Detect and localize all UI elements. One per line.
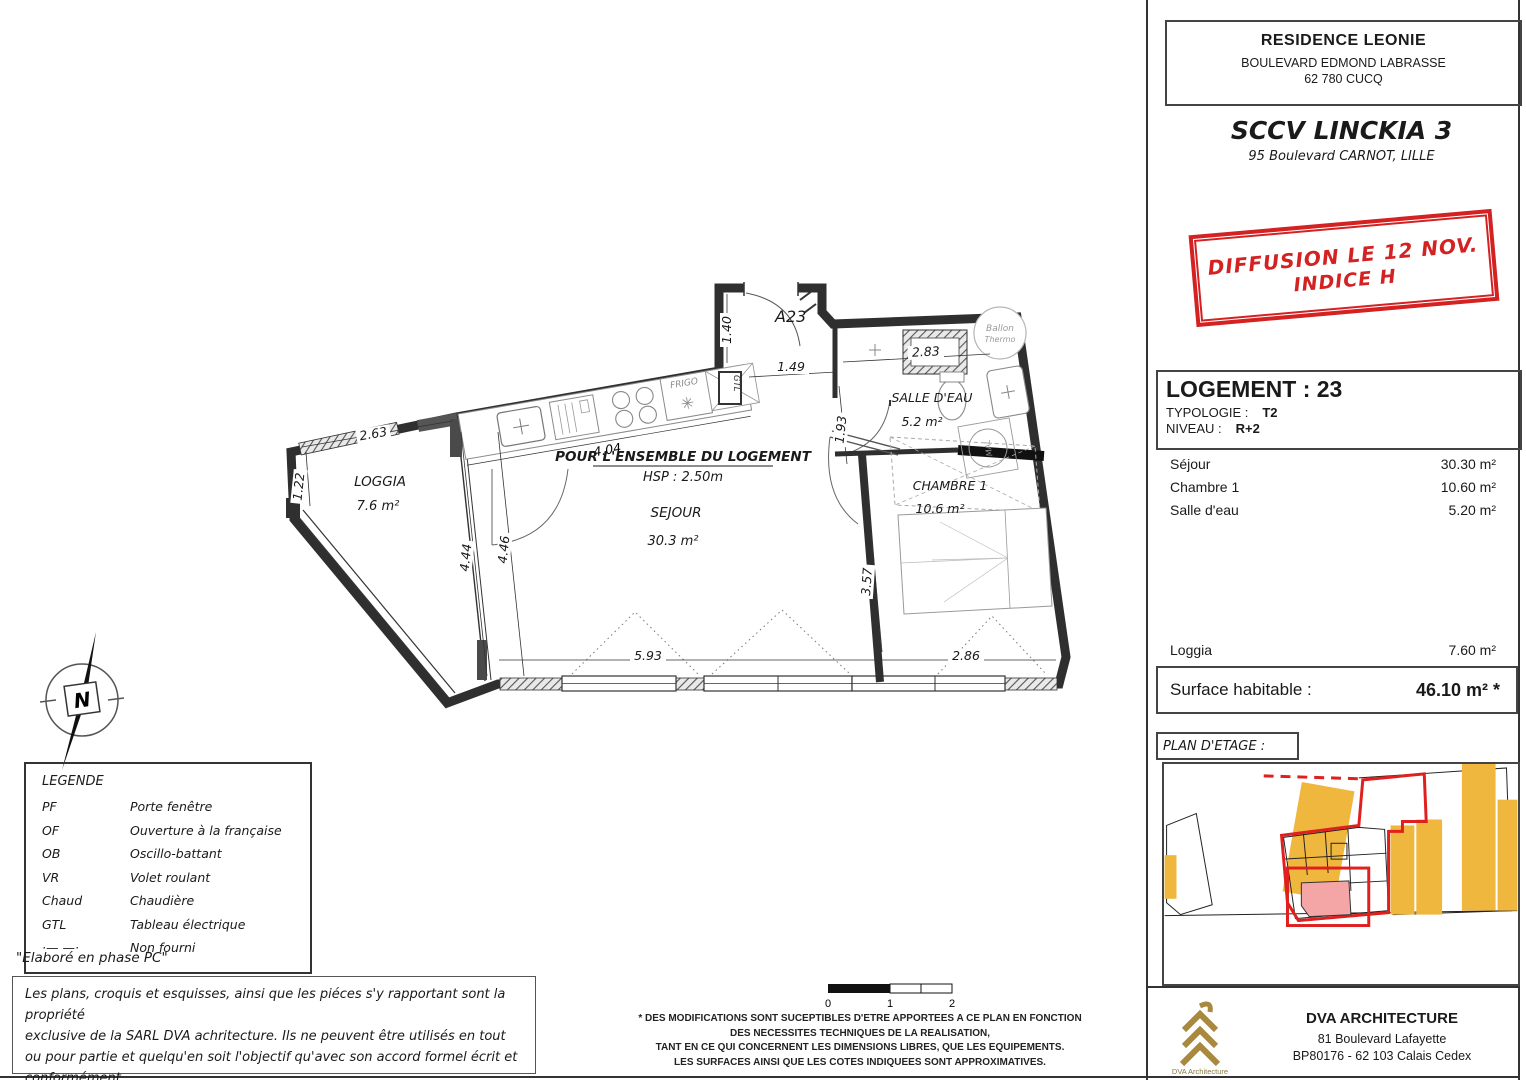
dim-sejour-w: 5.93: [634, 648, 662, 663]
room-loggia-area: 7.6 m²: [357, 499, 400, 514]
room-salle-area: 5.2 m²: [901, 414, 942, 429]
plan-etage-label-box: PLAN D'ETAGE :: [1156, 732, 1299, 760]
ensemble-note: POUR L'ENSEMBLE DU LOGEMENT: [555, 449, 813, 465]
dim-chambre-h: 3.57: [858, 567, 875, 596]
surface-value: 30.30 m²: [1441, 456, 1496, 472]
phase-note: "Elaboré en phase PC": [16, 950, 168, 966]
snowflake-icon: ✳: [680, 395, 696, 414]
niveau-value: R+2: [1236, 421, 1260, 436]
scale-0: 0: [825, 998, 831, 1010]
residence-address1: BOULEVARD EDMOND LABRASSE: [1167, 56, 1520, 70]
highlighted-unit: [1301, 881, 1351, 917]
dim-shower: 2.83: [911, 343, 940, 359]
habitable-surface-box: Surface habitable : 46.10 m² *: [1156, 666, 1518, 714]
apartment-code-label: A23: [774, 307, 806, 326]
developer-block: SCCV LINCKIA 3 95 Boulevard CARNOT, LILL…: [1165, 116, 1518, 164]
typologie-value: T2: [1262, 405, 1277, 420]
disclaimer-line: DES NECESSITES TECHNIQUES DE LA REALISAT…: [600, 1027, 1120, 1042]
loggia-value: 7.60 m²: [1449, 642, 1496, 658]
dim-partition-right: 4.46: [495, 535, 513, 564]
scale-1: 1: [887, 998, 893, 1010]
developer-address: 95 Boulevard CARNOT, LILLE: [1165, 149, 1518, 164]
surface-value: 10.60 m²: [1441, 479, 1496, 495]
surface-row: Chambre 1 10.60 m²: [1156, 475, 1508, 498]
scale-bar: 0 1 2: [825, 984, 955, 1010]
habitable-value: 46.10 m² *: [1416, 680, 1500, 701]
surface-label: Chambre 1: [1170, 479, 1239, 495]
surface-row: Salle d'eau 5.20 m²: [1156, 498, 1508, 521]
dva-logo: DVA Architecture: [1170, 998, 1230, 1076]
legend-desc: Ouverture à la française: [130, 823, 310, 838]
legend-key: GTL: [42, 917, 130, 932]
dim-corridor: 1.40: [719, 316, 734, 344]
plan-etage-label: PLAN D'ETAGE :: [1163, 739, 1265, 754]
residence-address2: 62 780 CUCQ: [1167, 72, 1520, 86]
dim-hall-w: 1.49: [777, 359, 805, 374]
floor-level-map-box: [1162, 762, 1520, 986]
habitable-label: Surface habitable :: [1170, 680, 1312, 700]
ballon-label: Ballon: [986, 324, 1014, 334]
room-chambre: CHAMBRE 1: [913, 478, 988, 493]
entry-door-opening: [744, 281, 798, 295]
room-loggia: LOGGIA: [354, 474, 406, 490]
disclaimer-line: LES SURFACES AINSI QUE LES COTES INDIQUE…: [600, 1056, 1120, 1071]
typologie-label: TYPOLOGIE :: [1166, 405, 1248, 420]
surface-table: Séjour 30.30 m² Chambre 1 10.60 m² Salle…: [1156, 452, 1508, 521]
thermo-label: Thermo: [985, 335, 1016, 344]
diffusion-stamp: DIFFUSION LE 12 NOV. INDICE H: [1189, 209, 1500, 327]
architect-address1: 81 Boulevard Lafayette: [1252, 1032, 1512, 1046]
unit-info-box: LOGEMENT : 23 TYPOLOGIE :T2 NIVEAU :R+2: [1156, 370, 1522, 450]
disclaimer-line: TANT EN CE QUI CONCERNENT LES DIMENSIONS…: [600, 1041, 1120, 1056]
legend-desc: Porte fenêtre: [130, 799, 310, 814]
room-sejour: SEJOUR: [651, 505, 702, 521]
north-compass: N: [40, 632, 124, 770]
architect-block: DVA ARCHITECTURE 81 Boulevard Lafayette …: [1252, 1010, 1512, 1063]
room-chambre-area: 10.6 m²: [916, 501, 965, 516]
legend-key: VR: [42, 870, 130, 885]
legend-key: OF: [42, 823, 130, 838]
legend-desc: Tableau électrique: [130, 917, 310, 932]
disclaimer-line: * DES MODIFICATIONS SONT SUCEPTIBLES D'E…: [600, 1012, 1120, 1027]
surface-value: 5.20 m²: [1449, 502, 1496, 518]
legend-desc: Volet roulant: [130, 870, 310, 885]
legend-key: Chaud: [42, 893, 130, 908]
loggia-label: Loggia: [1170, 642, 1212, 658]
room-sejour-area: 30.3 m²: [648, 534, 699, 549]
project-header: RESIDENCE LEONIE BOULEVARD EDMOND LABRAS…: [1165, 20, 1522, 106]
dva-logo-caption: DVA Architecture: [1172, 1067, 1228, 1076]
site-plan-map: [1164, 764, 1518, 984]
dim-hall-h: 1.93: [832, 415, 850, 444]
niveau-label: NIVEAU :: [1166, 421, 1222, 436]
developer-name: SCCV LINCKIA 3: [1165, 116, 1518, 145]
plan-sheet: FRIGO ✳ 4.04 GTL Ballon Thermo: [0, 0, 1526, 1080]
unit-title: LOGEMENT : 23: [1166, 376, 1520, 403]
surface-label: Salle d'eau: [1170, 502, 1239, 518]
dim-loggia-h: 1.22: [290, 472, 308, 501]
legend-box: LEGENDE PFPorte fenêtre OFOuverture à la…: [24, 762, 312, 974]
legend-desc: Oscillo-battant: [130, 846, 310, 861]
copyright-box: Les plans, croquis et esquisses, ainsi q…: [12, 976, 536, 1074]
bathroom-sink: [986, 365, 1030, 419]
copyright-line: ou pour partie et quelqu'en soit l'objec…: [25, 1047, 535, 1080]
vr-shutter-segment: [676, 678, 704, 690]
copyright-line: Les plans, croquis et esquisses, ainsi q…: [25, 984, 535, 1026]
panel-separator: [1146, 0, 1148, 1080]
legend-desc: Chaudière: [130, 893, 310, 908]
vr-shutter-segment: [500, 678, 562, 690]
bed: [898, 508, 1052, 614]
dim-partition-left: 4.44: [457, 543, 475, 572]
copyright-line: exclusive de la SARL DVA achritecture. I…: [25, 1026, 535, 1047]
vr-shutter-segment: [1005, 678, 1057, 690]
architect-name: DVA ARCHITECTURE: [1252, 1010, 1512, 1027]
legend-key: OB: [42, 846, 130, 861]
hsp-note: HSP : 2.50m: [643, 470, 723, 485]
architect-address2: BP80176 - 62 103 Calais Cedex: [1252, 1049, 1512, 1063]
dim-chambre-w: 2.86: [952, 648, 980, 663]
gtl-label: GTL: [731, 375, 741, 392]
legend-title: LEGENDE: [42, 774, 310, 789]
legend-key: PF: [42, 799, 130, 814]
room-salle: SALLE D'EAU: [892, 390, 973, 405]
surface-row: Séjour 30.30 m²: [1156, 452, 1508, 475]
scale-2: 2: [949, 998, 955, 1010]
surface-label: Séjour: [1170, 456, 1210, 472]
residence-name: RESIDENCE LEONIE: [1167, 32, 1520, 50]
modifications-disclaimer: * DES MODIFICATIONS SONT SUCEPTIBLES D'E…: [600, 1012, 1120, 1070]
loggia-row: Loggia 7.60 m²: [1156, 638, 1508, 661]
